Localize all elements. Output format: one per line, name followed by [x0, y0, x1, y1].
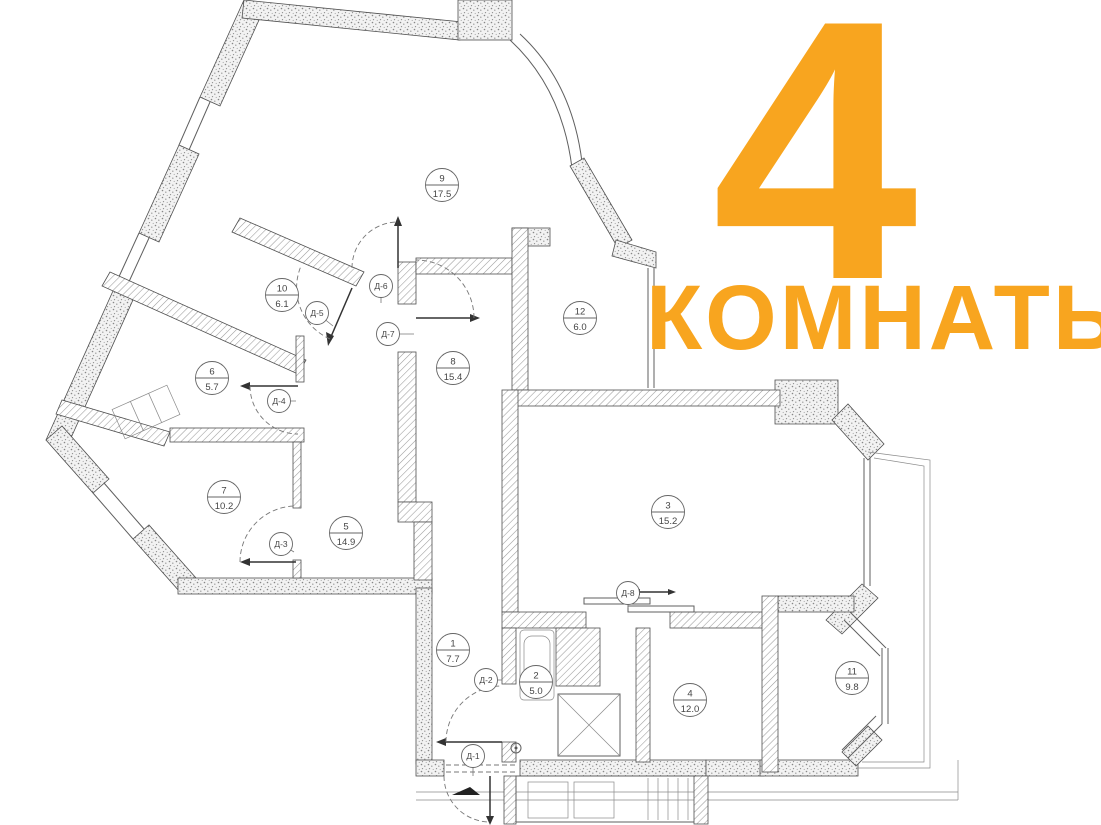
door-label-text: Д-2: [479, 675, 493, 685]
room-label-6: 65.7: [196, 362, 229, 395]
room-number: 7: [221, 486, 226, 497]
room-label-9: 917.5: [426, 169, 459, 202]
room-label-11: 119.8: [836, 662, 869, 695]
door-label-Д-2: Д-2: [475, 669, 503, 692]
floor-plan: Д-1Д-2Д-3Д-4Д-5Д-6Д-7Д-8 17.725.0315.241…: [0, 0, 1101, 825]
page: Д-1Д-2Д-3Д-4Д-5Д-6Д-7Д-8 17.725.0315.241…: [0, 0, 1101, 825]
door-label-text: Д-3: [274, 539, 288, 549]
room-area: 15.4: [444, 372, 463, 383]
room-number: 12: [575, 307, 586, 318]
room-area: 9.8: [845, 682, 858, 693]
room-label-3: 315.2: [652, 496, 685, 529]
door-label-Д-4: Д-4: [268, 390, 297, 413]
door-label-text: Д-6: [374, 281, 388, 291]
room-number: 5: [343, 522, 348, 533]
room-label-2: 25.0: [520, 666, 553, 699]
room-label-1: 17.7: [437, 634, 470, 667]
room-label-7: 710.2: [208, 481, 241, 514]
room-number: 4: [687, 689, 692, 700]
door-label-text: Д-5: [310, 308, 324, 318]
room-label-4: 412.0: [674, 684, 707, 717]
room-area: 12.0: [681, 704, 700, 715]
door-label-Д-6: Д-6: [370, 275, 393, 304]
door-label-Д-3: Д-3: [270, 533, 295, 556]
door-label-text: Д-8: [621, 588, 635, 598]
room-area: 14.9: [337, 537, 356, 548]
door-label-Д-1: Д-1: [462, 745, 485, 777]
room-number: 2: [533, 671, 538, 682]
door-labels: Д-1Д-2Д-3Д-4Д-5Д-6Д-7Д-8: [268, 275, 640, 777]
room-number: 1: [450, 639, 455, 650]
room-area: 10.2: [215, 501, 234, 512]
door-label-text: Д-7: [381, 329, 395, 339]
door-label-Д-7: Д-7: [377, 323, 415, 346]
room-number: 3: [665, 501, 670, 512]
room-area: 5.7: [205, 382, 218, 393]
room-area: 6.0: [573, 322, 586, 333]
room-area: 6.1: [275, 299, 288, 310]
room-number: 10: [277, 284, 288, 295]
room-area: 15.2: [659, 516, 678, 527]
floor-plan-svg: Д-1Д-2Д-3Д-4Д-5Д-6Д-7Д-8 17.725.0315.241…: [0, 0, 1101, 825]
room-number: 11: [847, 667, 857, 678]
room-label-5: 514.9: [330, 517, 363, 550]
room-label-12: 126.0: [564, 302, 597, 335]
room-label-8: 815.4: [437, 352, 470, 385]
room-label-10: 106.1: [266, 279, 299, 312]
room-number: 8: [450, 357, 455, 368]
door-label-text: Д-4: [272, 396, 286, 406]
room-number: 6: [209, 367, 214, 378]
room-area: 5.0: [529, 686, 542, 697]
room-number: 9: [439, 174, 444, 185]
hero-subtitle: КОМНАТЫ: [646, 272, 1101, 364]
door-label-text: Д-1: [466, 751, 480, 761]
room-area: 17.5: [433, 189, 452, 200]
door-label-Д-5: Д-5: [306, 302, 334, 327]
room-area: 7.7: [446, 654, 459, 665]
